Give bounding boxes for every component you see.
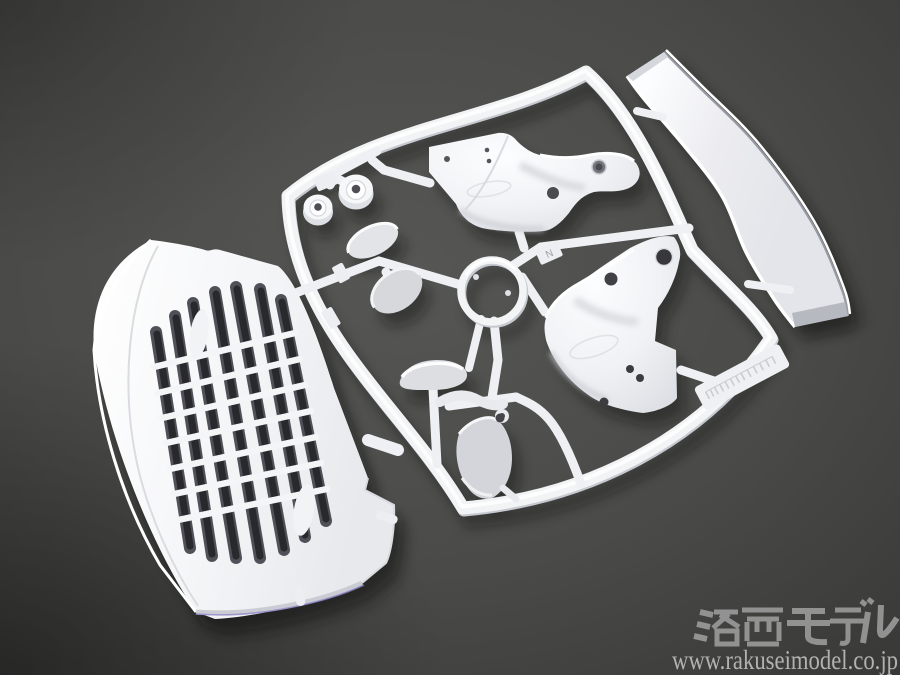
svg-text:www.rakuseimodel.co.jp: www.rakuseimodel.co.jp: [672, 645, 898, 675]
